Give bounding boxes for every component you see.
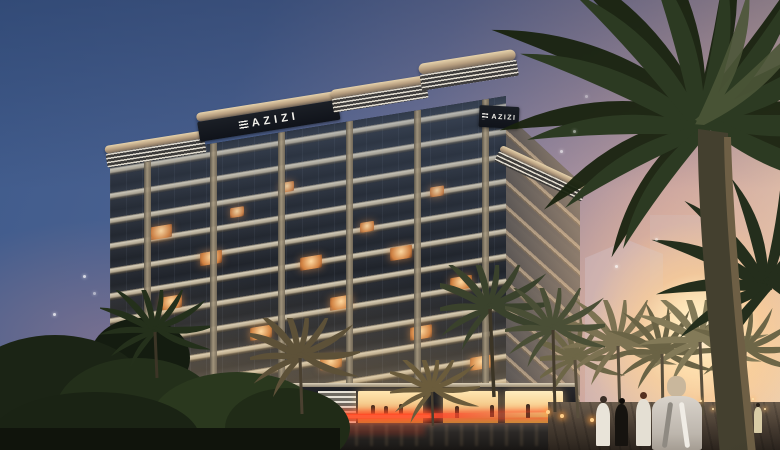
rendering-scene: AZIZI AZIZI (0, 0, 780, 450)
garden-palm (100, 290, 210, 380)
bokeh-light (53, 313, 56, 316)
hedge-shadow (0, 428, 340, 450)
azizi-sign-text: AZIZI (251, 111, 300, 129)
sky-sparkle (573, 130, 576, 133)
bokeh-light (93, 292, 96, 295)
sky-sparkle (585, 95, 588, 98)
foreground-palm-tree (468, 0, 780, 450)
sky-sparkle (560, 150, 563, 153)
sky-sparkle (655, 238, 658, 241)
sky-sparkle (615, 265, 618, 268)
azizi-logo-icon (238, 120, 248, 129)
garden-palm (250, 318, 360, 418)
bokeh-light (83, 275, 86, 278)
